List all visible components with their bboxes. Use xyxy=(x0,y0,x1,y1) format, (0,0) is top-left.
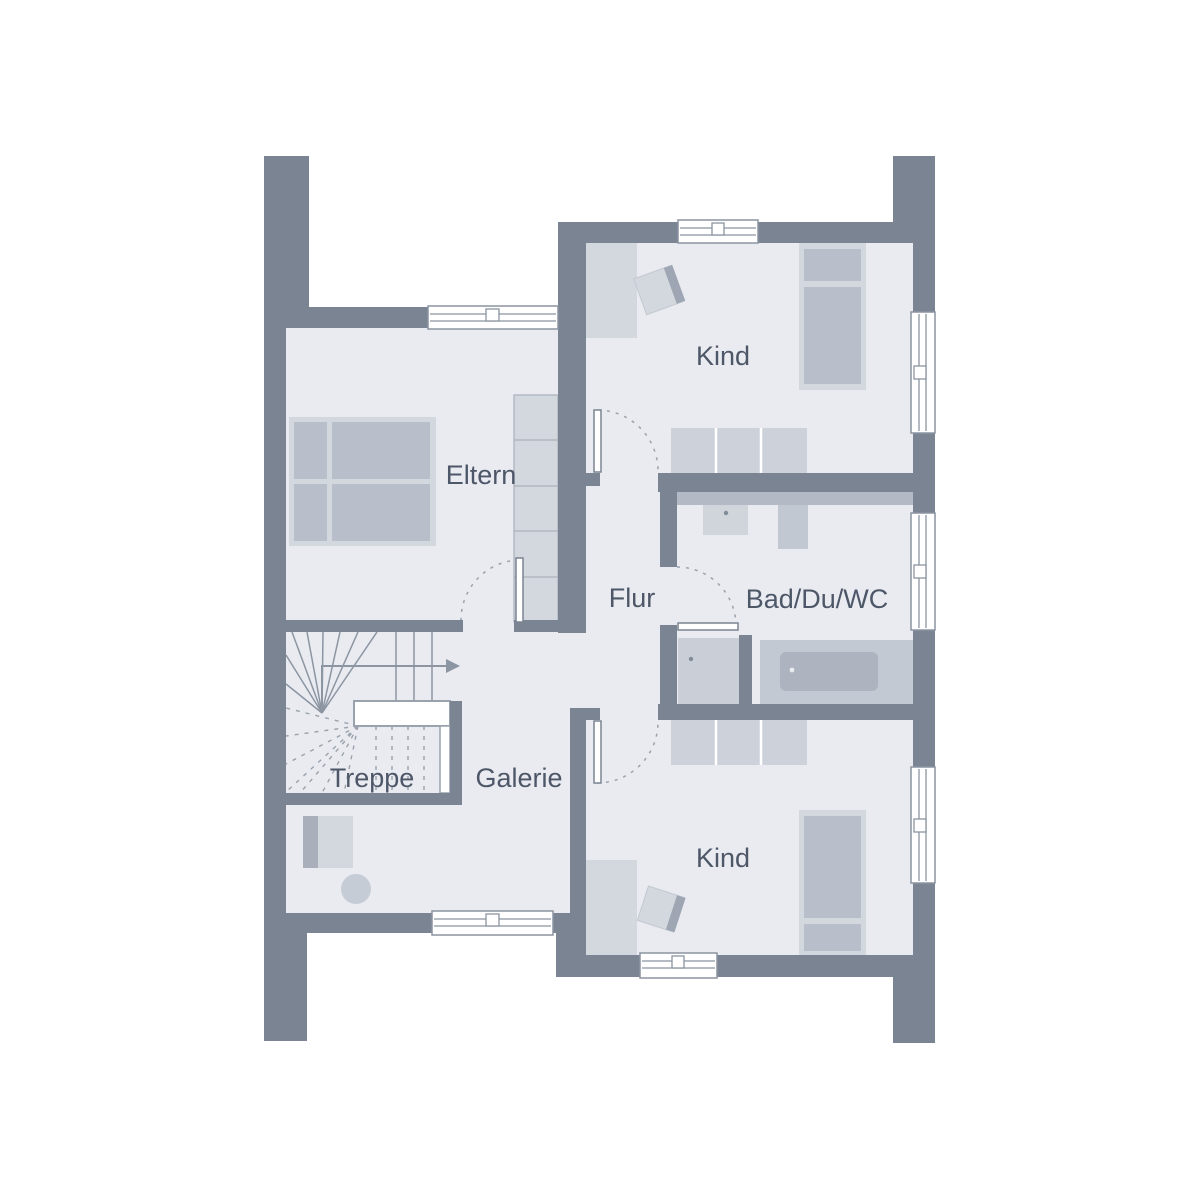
wall-treppe-bottom xyxy=(286,793,462,805)
sideboard-kind-top xyxy=(671,428,807,473)
label-flur: Flur xyxy=(609,583,656,613)
wall-central xyxy=(558,222,586,633)
wall-right-1 xyxy=(913,243,935,312)
label-galerie: Galerie xyxy=(475,763,562,793)
wall-left xyxy=(264,328,286,933)
label-bad-du-wc: Bad/Du/WC xyxy=(746,584,889,614)
side-table xyxy=(341,874,371,904)
window-right-bad xyxy=(911,513,935,630)
label-treppe: Treppe xyxy=(330,763,415,793)
wall-galerie-kind xyxy=(570,708,586,977)
wall-stub-bottom-left xyxy=(264,933,307,1041)
wall-bad-bottom xyxy=(658,704,935,720)
wall-eltern-top xyxy=(264,307,428,328)
wall-kind-top-2 xyxy=(758,222,935,243)
wall-flur-jamb-top xyxy=(586,473,600,486)
wall-bad-left-lower xyxy=(660,625,677,708)
wall-right-2 xyxy=(913,433,935,513)
floor-plan-canvas: Eltern Kind Flur Bad/Du/WC Treppe Galeri… xyxy=(0,0,1200,1200)
window-eltern xyxy=(428,306,558,329)
wall-stub-top-left xyxy=(264,156,309,310)
toilet xyxy=(703,505,748,535)
wall-stub-bottom-right xyxy=(893,977,935,1043)
wall-galerie-kind-foot xyxy=(556,933,572,977)
wall-bad-left-upper xyxy=(660,492,677,567)
wardrobe-kind-bottom xyxy=(586,860,637,955)
bathtub xyxy=(760,640,913,704)
bed-kind-top xyxy=(799,243,866,390)
armchair xyxy=(303,816,353,868)
wall-shower-separator xyxy=(739,635,752,704)
wall-galerie-bottom-1 xyxy=(264,913,432,933)
wardrobe-kind-top xyxy=(586,243,637,338)
floor-plan: Eltern Kind Flur Bad/Du/WC Treppe Galeri… xyxy=(0,0,1200,1200)
wall-eltern-bottom xyxy=(286,620,463,632)
wall-right-3 xyxy=(913,630,935,767)
wall-stub-top-right xyxy=(893,156,935,222)
window-right-kind-bottom xyxy=(911,767,935,883)
window-galerie xyxy=(432,911,553,935)
wall-bad-top xyxy=(658,473,913,492)
label-kind-top: Kind xyxy=(696,341,750,371)
washbasin xyxy=(778,505,808,549)
window-kind-top xyxy=(678,220,758,243)
shower xyxy=(678,638,739,704)
window-right-kind-top xyxy=(911,312,935,433)
wall-treppe-right xyxy=(450,701,462,805)
label-eltern: Eltern xyxy=(446,460,517,490)
wall-kind-bottom-2 xyxy=(717,955,935,977)
sideboard-kind-bottom xyxy=(671,720,807,765)
wall-kind-bottom-1 xyxy=(584,955,640,977)
wall-eltern-bottom-cap xyxy=(514,620,586,632)
label-kind-bottom: Kind xyxy=(696,843,750,873)
double-bed xyxy=(289,417,436,546)
window-kind-bottom xyxy=(640,953,717,978)
bed-kind-bottom xyxy=(799,810,866,957)
